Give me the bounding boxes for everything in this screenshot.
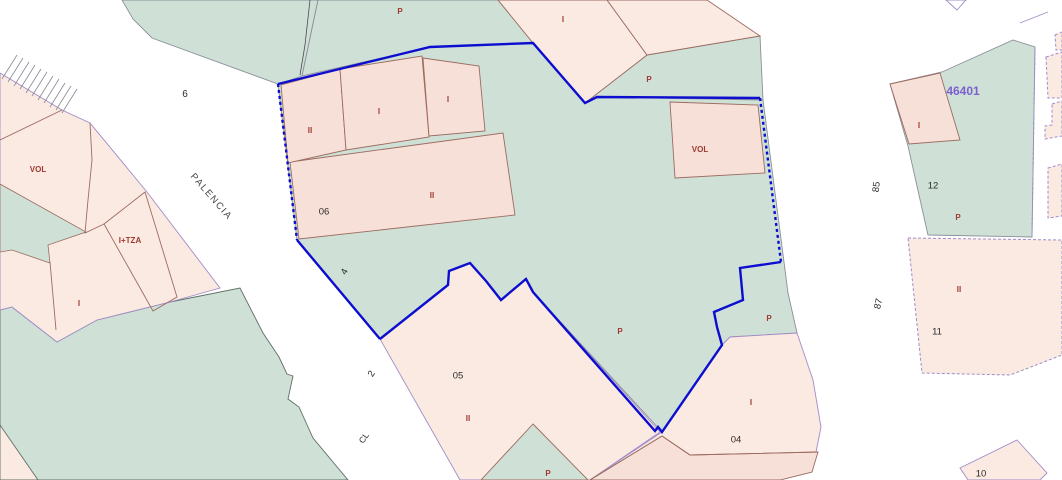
building-i-small-1[interactable] bbox=[340, 56, 429, 150]
parcel-label-i: I bbox=[447, 96, 449, 104]
parcel-label-ii: II bbox=[308, 127, 312, 135]
parcel-label-12: 12 bbox=[928, 181, 939, 191]
parcel-label-ii: II bbox=[430, 192, 434, 200]
parcel-label-05: 05 bbox=[453, 371, 464, 381]
building-right-edge-1[interactable] bbox=[1046, 52, 1062, 98]
parcel-label-i: I bbox=[750, 399, 752, 407]
building-i-small-2[interactable] bbox=[423, 58, 485, 136]
parcel-label-11: 11 bbox=[932, 327, 942, 337]
parcel-label-ii: II bbox=[957, 286, 961, 294]
map-canvas[interactable] bbox=[0, 0, 1062, 480]
parcel-label-ii: II bbox=[466, 415, 470, 423]
parcel-label-46401: 46401 bbox=[946, 85, 979, 97]
parcel-label-6: 6 bbox=[182, 90, 188, 100]
parcel-11[interactable] bbox=[908, 238, 1062, 375]
parcel-label-04: 04 bbox=[731, 435, 742, 445]
parcel-label-85: 85 bbox=[872, 181, 883, 193]
parcel-label-87: 87 bbox=[873, 298, 885, 311]
parcel-label-p: P bbox=[617, 328, 622, 336]
building-right-edge-2[interactable] bbox=[1045, 101, 1062, 139]
building-ii-small[interactable] bbox=[281, 69, 346, 163]
building-right-edge-0[interactable] bbox=[1055, 32, 1062, 50]
parcel-label-vol: VOL bbox=[692, 146, 708, 154]
parcel-label-i-tza: I+TZA bbox=[119, 237, 141, 245]
parcel-label-p: P bbox=[955, 214, 960, 222]
building-right-edge-3[interactable] bbox=[1048, 164, 1062, 218]
parcel-label-p: P bbox=[646, 76, 651, 84]
parcel-label-p: P bbox=[397, 8, 402, 16]
parcel-green-top-left[interactable] bbox=[122, 0, 318, 84]
parcel-chevron-top[interactable] bbox=[946, 0, 966, 10]
parcel-label-vol: VOL bbox=[30, 166, 46, 174]
parcel-label-i: I bbox=[378, 108, 380, 116]
cadastral-map[interactable]: PIP6IIIIVOLVOLPALENCIA06III+TZA4IP205IIC… bbox=[0, 0, 1062, 480]
parcel-label-p: P bbox=[545, 470, 550, 478]
building-vol[interactable] bbox=[670, 102, 765, 178]
parcel-10[interactable] bbox=[960, 440, 1047, 480]
parcel-label-10: 10 bbox=[976, 469, 987, 479]
parcel-label-06: 06 bbox=[319, 207, 330, 217]
parcel-label-i: I bbox=[78, 300, 80, 308]
parcel-label-i: I bbox=[918, 122, 920, 130]
parcel-label-p: P bbox=[766, 315, 771, 323]
parcel-label-i: I bbox=[562, 16, 564, 24]
